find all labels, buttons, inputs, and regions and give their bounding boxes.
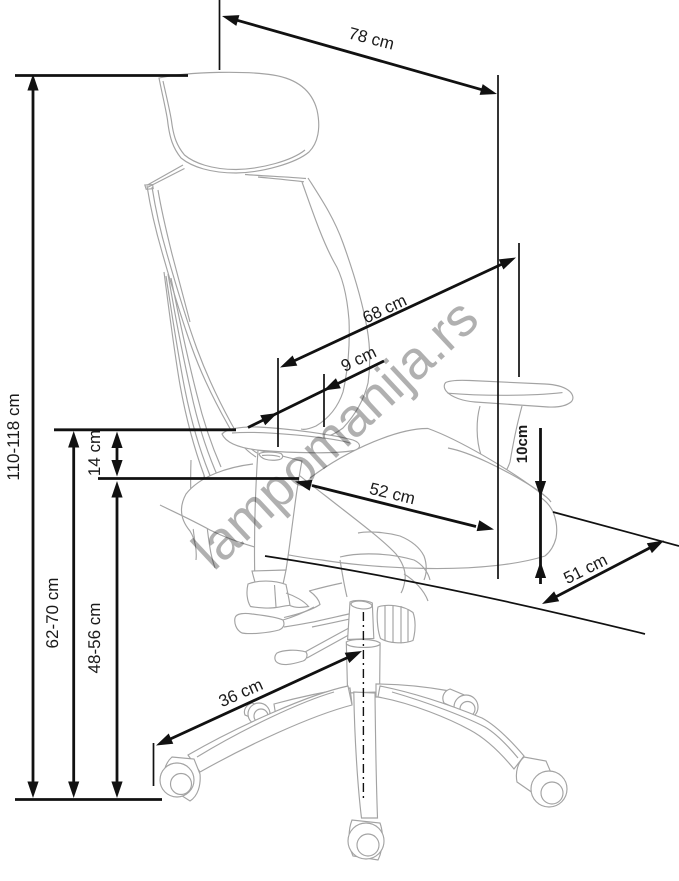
svg-text:68 cm: 68 cm	[360, 291, 410, 328]
svg-text:62-70 cm: 62-70 cm	[43, 578, 62, 649]
svg-text:10cm: 10cm	[514, 425, 531, 463]
svg-text:78 cm: 78 cm	[347, 24, 397, 54]
svg-text:110-118 cm: 110-118 cm	[4, 393, 23, 480]
svg-text:48-56 cm: 48-56 cm	[85, 603, 104, 674]
svg-text:14 cm: 14 cm	[85, 430, 104, 476]
